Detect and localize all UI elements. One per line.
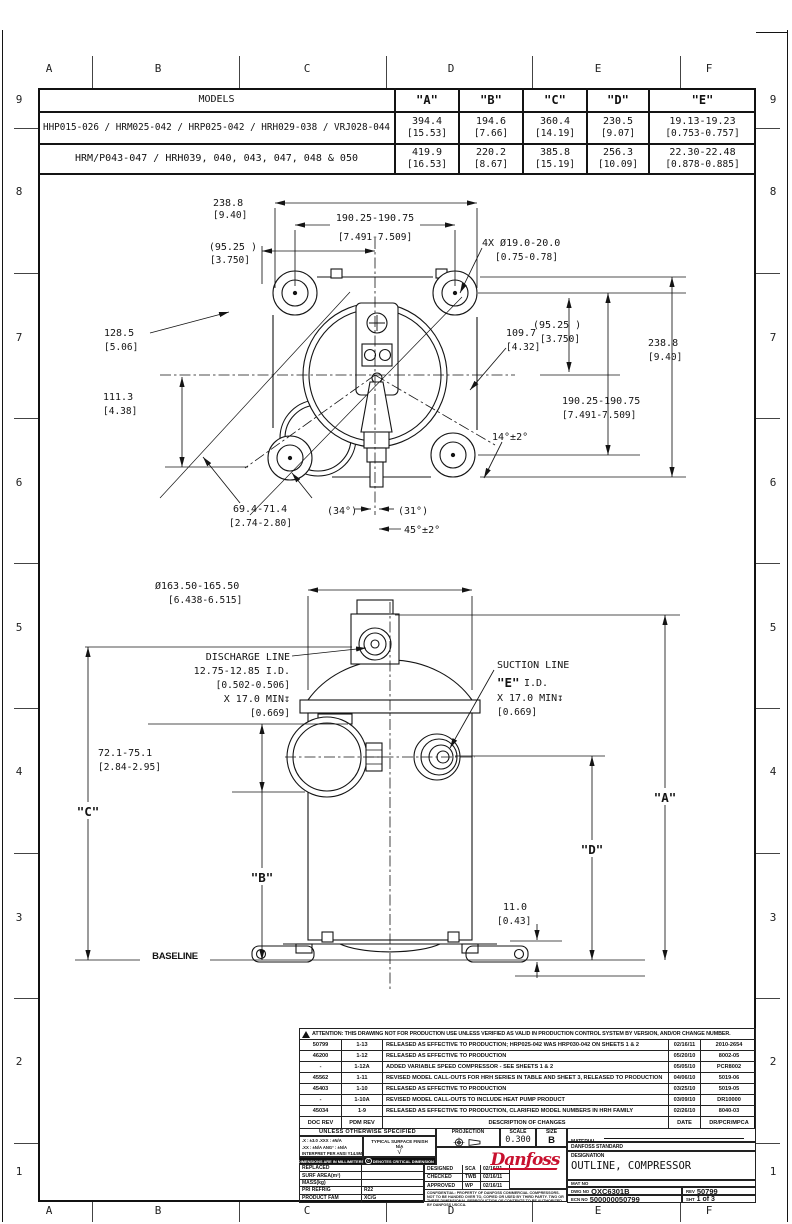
rev-ref: PCR8002 [701, 1062, 757, 1072]
zone-number-right: 5 [764, 621, 782, 634]
dim-bolt-span-right-in: [7.491-7.509] [562, 410, 636, 421]
dim-angle-31: (31°) [398, 506, 428, 517]
dim-11-mm: 11.0 [503, 902, 527, 913]
dim-letter-c: "C" [77, 804, 100, 819]
attention-text: ATTENTION: THIS DRAWING NOT FOR PRODUCTI… [312, 1031, 731, 1037]
zone-tick [756, 563, 780, 564]
top-view-drawing [268, 269, 477, 487]
zone-number-right: 8 [764, 185, 782, 198]
outer-border-top [756, 32, 788, 33]
dim-bolt-span-right-mm: 190.25-190.75 [562, 396, 640, 407]
zone-tick [756, 708, 780, 709]
dim-128-mm: 128.5 [104, 328, 134, 339]
size-value: B [537, 1135, 566, 1146]
zone-tick [386, 56, 387, 88]
rev-date: 04/06/10 [669, 1073, 701, 1083]
rev-date: 03/09/10 [669, 1095, 701, 1105]
suction-callout-4: [0.669] [497, 707, 537, 718]
zone-number-left: 6 [10, 476, 28, 489]
dim-69-in: [2.74-2.80] [229, 518, 292, 529]
rev-date: 05/05/10 [669, 1062, 701, 1072]
critical-bar-label: DENOTES CRITICAL DIMENSION [373, 1159, 434, 1164]
suction-callout-id: I.D. [524, 678, 548, 689]
model-row-1-name: HHP015-026 / HRM025-042 / HRP025-042 / H… [38, 112, 395, 143]
model-row-1-a: 394.4[15.53] [395, 112, 459, 143]
rev-date: 03/25/10 [669, 1084, 701, 1094]
dim-letter-d: "D" [581, 842, 604, 857]
zone-letter-bottom: A [40, 1204, 58, 1217]
zone-letter-bottom: E [589, 1204, 607, 1217]
zone-tick [14, 998, 38, 999]
rev-doc: 45034 [300, 1106, 342, 1116]
pair-value: R22 [362, 1187, 423, 1193]
critical-bar: C DENOTES CRITICAL DIMENSION [363, 1157, 436, 1165]
tolerance-cell: .X : ±3.0 .XXX : ±N/A .XX : ±N/A ANG° : … [299, 1136, 363, 1157]
dim-half-span-right-mm: (95.25 ) [533, 320, 581, 331]
revision-row: -1-12AADDED VARIABLE SPEED COMPRESSOR - … [299, 1062, 756, 1073]
zone-tick [92, 1202, 93, 1222]
designation-label: DESIGNATION [571, 1153, 755, 1159]
discharge-callout-4: X 17.0 MIN↧ [224, 694, 290, 705]
col-header-c: "C" [523, 88, 587, 112]
rev-ref: 8002-05 [701, 1051, 757, 1061]
dim-half-span-right-in: [3.750] [540, 334, 580, 345]
zone-tick [386, 1202, 387, 1222]
pair-value [362, 1165, 423, 1171]
discharge-fitting [351, 600, 399, 664]
outer-border-right [787, 30, 788, 1222]
dim-109-in: [4.32] [506, 342, 540, 353]
model-row-1-d: 230.5[9.07] [587, 112, 649, 143]
zone-tick [532, 1202, 533, 1222]
zone-tick [239, 56, 240, 88]
model-row-2-d: 256.3[10.09] [587, 144, 649, 174]
ecn-no-cell: ECN NO 500000050799 [567, 1195, 682, 1203]
dim-overall-width-in: [9.40] [213, 210, 247, 221]
confidential-note: CONFIDENTIAL: PROPERTY OF DANFOSS COMMER… [424, 1189, 567, 1202]
model-row-2-e: 22.30-22.48[0.878-0.885] [649, 144, 756, 174]
zone-number-left: 7 [10, 331, 28, 344]
baseline-label: BASELINE [152, 951, 198, 962]
units-bar-label: DIMENSIONS ARE IN MILLIMETERS [298, 1159, 364, 1164]
zone-tick [756, 998, 780, 999]
zone-number-right: 4 [764, 765, 782, 778]
zone-tick [14, 273, 38, 274]
dim-letter-b: "B" [251, 870, 274, 885]
drawing-views: 238.8 [9.40] 190.25-190.75 [7.491-7.509]… [38, 175, 756, 1028]
zone-tick [756, 128, 780, 129]
dim-11-in: [0.43] [497, 916, 531, 927]
zone-number-right: 1 [764, 1165, 782, 1178]
rev-pdm: 1-13 [342, 1040, 383, 1050]
rev-header-ref: DR/PCR/MPCA [701, 1117, 757, 1128]
ecn-no-value: 500000050799 [590, 1195, 640, 1204]
confidential-text: CONFIDENTIAL: PROPERTY OF DANFOSS COMMER… [427, 1191, 564, 1207]
rev-header-desc: DESCRIPTION OF CHANGES [383, 1117, 669, 1128]
zone-number-left: 5 [10, 621, 28, 634]
rev-ref: 5019-06 [701, 1073, 757, 1083]
revision-row: 507991-13RELEASED AS EFFECTIVE TO PRODUC… [299, 1040, 756, 1051]
dim-half-span-in: [3.750] [210, 255, 250, 266]
units-bar: DIMENSIONS ARE IN MILLIMETERS [299, 1157, 363, 1165]
danfoss-standard-cell: DANFOSS STANDARD [567, 1142, 756, 1151]
discharge-callout-5: [0.669] [250, 708, 290, 719]
zone-letter-top: B [149, 62, 167, 75]
mounting-lug-bottom-right [431, 433, 475, 477]
model-row-2-name: HRM/P043-047 / HRH039, 040, 043, 047, 04… [38, 144, 395, 174]
rev-desc: REVISED MODEL CALL-OUTS FOR HRH SERIES I… [383, 1073, 669, 1083]
sht-label: SHT [686, 1197, 695, 1202]
terminal-box [356, 303, 398, 395]
model-row-2-a: 419.9[16.53] [395, 144, 459, 174]
surface-finish-icon: √ [364, 1149, 435, 1154]
left-pairs-table: REPLACED SURF AREA(m²) MASS(kg) PRI REFR… [299, 1165, 424, 1203]
zone-tick [14, 128, 38, 129]
zone-letter-bottom: C [298, 1204, 316, 1217]
zone-number-right: 7 [764, 331, 782, 344]
approval-initials: SCA [463, 1165, 481, 1173]
approval-label: DESIGNED [425, 1165, 463, 1173]
model-row-1-c: 360.4[14.19] [523, 112, 587, 143]
rev-doc: - [300, 1062, 342, 1072]
rev-pdm: 1-10A [342, 1095, 383, 1105]
danfoss-logo: Danfoss [486, 1150, 564, 1180]
zone-tick [14, 418, 38, 419]
zone-tick [756, 273, 780, 274]
revision-row: 455621-11REVISED MODEL CALL-OUTS FOR HRH… [299, 1073, 756, 1084]
dim-angle-34: (34°) [327, 506, 357, 517]
zone-tick [756, 1143, 780, 1144]
scale-value: 0.300 [501, 1135, 535, 1145]
col-header-b: "B" [459, 88, 523, 112]
zone-tick [680, 1202, 681, 1222]
col-header-d: "D" [587, 88, 649, 112]
approval-initials: TWB [463, 1174, 481, 1182]
pair-label: SURF AREA(m²) [300, 1172, 362, 1178]
dim-111-mm: 111.3 [103, 392, 133, 403]
rev-pdm: 1-9 [342, 1106, 383, 1116]
zone-number-left: 8 [10, 185, 28, 198]
sht-cell: SHT 1 of 3 [682, 1195, 756, 1203]
dim-half-span-mm: (95.25 ) [209, 242, 257, 253]
zone-number-right: 2 [764, 1055, 782, 1068]
rev-label: REV [686, 1189, 695, 1194]
rev-desc: RELEASED AS EFFECTIVE TO PRODUCTION, CLA… [383, 1106, 669, 1116]
dim-bolt-holes-1: 4X Ø19.0-20.0 [482, 237, 560, 249]
zone-number-right: 6 [764, 476, 782, 489]
revision-row: 454031-10RELEASED AS EFFECTIVE TO PRODUC… [299, 1084, 756, 1095]
zone-tick [14, 563, 38, 564]
zone-letter-bottom: B [149, 1204, 167, 1217]
outer-border-left [2, 30, 3, 1222]
pair-label: PRODUCT FAM [300, 1195, 362, 1202]
dim-bolt-span-in: [7.491-7.509] [338, 232, 412, 243]
rev-doc: 50799 [300, 1040, 342, 1050]
suction-callout-1: SUCTION LINE [497, 660, 569, 671]
pair-label: MASS(kg) [300, 1180, 362, 1186]
zone-tick [680, 56, 681, 88]
discharge-callout-3: [0.502-0.506] [216, 680, 290, 691]
rev-doc: 45403 [300, 1084, 342, 1094]
zone-tick [14, 1143, 38, 1144]
pair-label: PRI REFRIG [300, 1187, 362, 1193]
zone-tick [756, 853, 780, 854]
zone-number-left: 4 [10, 765, 28, 778]
dim-111-in: [4.38] [103, 406, 137, 417]
zone-number-left: 2 [10, 1055, 28, 1068]
discharge-callout-1: DISCHARGE LINE [206, 652, 290, 663]
col-header-a: "A" [395, 88, 459, 112]
model-row-2-b: 220.2[8.67] [459, 144, 523, 174]
rev-date: 05/20/10 [669, 1051, 701, 1061]
pair-value [362, 1172, 423, 1178]
zone-tick [239, 1202, 240, 1222]
revision-table: ATTENTION: THIS DRAWING NOT FOR PRODUCTI… [299, 1028, 756, 1129]
dim-angle-45: 45°±2° [404, 525, 440, 536]
zone-tick [92, 56, 93, 88]
zone-number-left: 3 [10, 911, 28, 924]
attention-triangle-icon [302, 1031, 310, 1038]
unless-label: UNLESS OTHERWISE SPECIFIED [319, 1129, 416, 1135]
zone-letter-top: F [700, 62, 718, 75]
rev-pdm: 1-11 [342, 1073, 383, 1083]
rev-ref: 5019-05 [701, 1084, 757, 1094]
dim-bolt-span-mm: 190.25-190.75 [336, 213, 414, 224]
suction-callout-3: X 17.0 MIN↧ [497, 693, 563, 704]
size-cell: SIZE B [536, 1128, 567, 1147]
model-row-1-b: 194.6[7.66] [459, 112, 523, 143]
dim-dia-mm: Ø163.50-165.50 [155, 580, 239, 592]
zone-tick [14, 853, 38, 854]
dim-109-mm: 109.7 [506, 328, 536, 339]
pair-value: XC/G [362, 1195, 423, 1202]
rev-ref: 8040-03 [701, 1106, 757, 1116]
unless-row: UNLESS OTHERWISE SPECIFIED [299, 1128, 436, 1136]
zone-letter-top: C [298, 62, 316, 75]
drawing-sheet: A B C D E F A B C D E F 9 8 7 6 5 4 3 2 … [0, 0, 792, 1224]
material-cell: MATERIAL [567, 1128, 756, 1142]
ecn-no-label: ECN NO [571, 1197, 588, 1202]
rev-doc: 45562 [300, 1073, 342, 1083]
dim-dia-in: [6.438-6.515] [168, 595, 242, 606]
plate-clip [331, 269, 342, 278]
revision-row: -1-10AREVISED MODEL CALL-OUTS TO INCLUDE… [299, 1095, 756, 1106]
rev-doc: - [300, 1095, 342, 1105]
sht-value: 1 of 3 [697, 1196, 715, 1203]
dim-overall-height-in: [9.40] [648, 352, 682, 363]
dim-letter-a: "A" [654, 790, 677, 805]
zone-letter-top: E [589, 62, 607, 75]
revision-row: 462001-12RELEASED AS EFFECTIVE TO PRODUC… [299, 1051, 756, 1062]
rev-date: 02/26/10 [669, 1106, 701, 1116]
mat-no-label: MAT NO [571, 1181, 588, 1186]
dwg-no-label: DWG NO [571, 1189, 589, 1194]
rev-header-date: DATE [669, 1117, 701, 1128]
projection-label: PROJECTION [437, 1129, 499, 1135]
logo-underline [493, 1168, 558, 1170]
dim-72-mm: 72.1-75.1 [98, 748, 152, 759]
danfoss-standard-label: DANFOSS STANDARD [571, 1144, 623, 1150]
rev-desc: RELEASED AS EFFECTIVE TO PRODUCTION [383, 1051, 669, 1061]
approval-label: CHECKED [425, 1174, 463, 1182]
rev-ref: 2010-2654 [701, 1040, 757, 1050]
revision-row: 450341-9RELEASED AS EFFECTIVE TO PRODUCT… [299, 1106, 756, 1117]
zone-number-left: 9 [10, 93, 28, 106]
rev-desc: RELEASED AS EFFECTIVE TO PRODUCTION; HRP… [383, 1040, 669, 1050]
zone-tick [532, 56, 533, 88]
models-header: MODELS [38, 88, 395, 112]
discharge-callout-2: 12.75-12.85 I.D. [194, 666, 290, 677]
dim-128-in: [5.06] [104, 342, 138, 353]
rev-pdm: 1-12A [342, 1062, 383, 1072]
zone-number-right: 3 [764, 911, 782, 924]
rev-cell: REV 50799 [682, 1187, 756, 1195]
rev-desc: REVISED MODEL CALL-OUTS TO INCLUDE HEAT … [383, 1095, 669, 1105]
scale-cell: SCALE 0.300 [500, 1128, 536, 1147]
model-row-1-e: 19.13-19.23[0.753-0.757] [649, 112, 756, 143]
material-line [604, 1138, 744, 1139]
rev-pdm: 1-12 [342, 1051, 383, 1061]
dim-overall-width-mm: 238.8 [213, 198, 243, 209]
attention-row: ATTENTION: THIS DRAWING NOT FOR PRODUCTI… [299, 1028, 756, 1040]
pair-label: REPLACED [300, 1165, 362, 1171]
rev-desc: ADDED VARIABLE SPEED COMPRESSOR - SEE SH… [383, 1062, 669, 1072]
zone-letter-top: A [40, 62, 58, 75]
rev-desc: RELEASED AS EFFECTIVE TO PRODUCTION [383, 1084, 669, 1094]
dim-72-in: [2.84-2.95] [98, 762, 161, 773]
dim-69-mm: 69.4-71.4 [233, 504, 287, 515]
rev-date: 02/16/11 [669, 1040, 701, 1050]
zone-number-right: 9 [764, 93, 782, 106]
zone-tick [756, 418, 780, 419]
circled-c-icon: C [365, 1158, 372, 1165]
zone-letter-top: D [442, 62, 460, 75]
dim-overall-height-mm: 238.8 [648, 338, 678, 349]
rev-header-doc: DOC REV [300, 1117, 342, 1128]
zone-tick [14, 708, 38, 709]
col-header-e: "E" [649, 88, 756, 112]
rev-header-pdm: PDM REV [342, 1117, 383, 1128]
projection-cell: PROJECTION [436, 1128, 500, 1147]
dim-bolt-holes-2: [0.75-0.78] [495, 252, 558, 263]
suction-callout-e: "E" [497, 675, 520, 690]
rev-doc: 46200 [300, 1051, 342, 1061]
zone-number-left: 1 [10, 1165, 28, 1178]
designation-cell: DESIGNATION OUTLINE, COMPRESSOR [567, 1151, 756, 1180]
model-row-2-c: 385.8[15.19] [523, 144, 587, 174]
zone-letter-bottom: F [700, 1204, 718, 1217]
rev-ref: DR10000 [701, 1095, 757, 1105]
pair-value [362, 1180, 423, 1186]
designation-value: OUTLINE, COMPRESSOR [571, 1160, 755, 1172]
dim-angle-14: 14°±2° [492, 432, 528, 443]
rev-pdm: 1-10 [342, 1084, 383, 1094]
surface-finish-cell: TYPICAL SURFACE FINISH N/A √ [363, 1136, 436, 1157]
